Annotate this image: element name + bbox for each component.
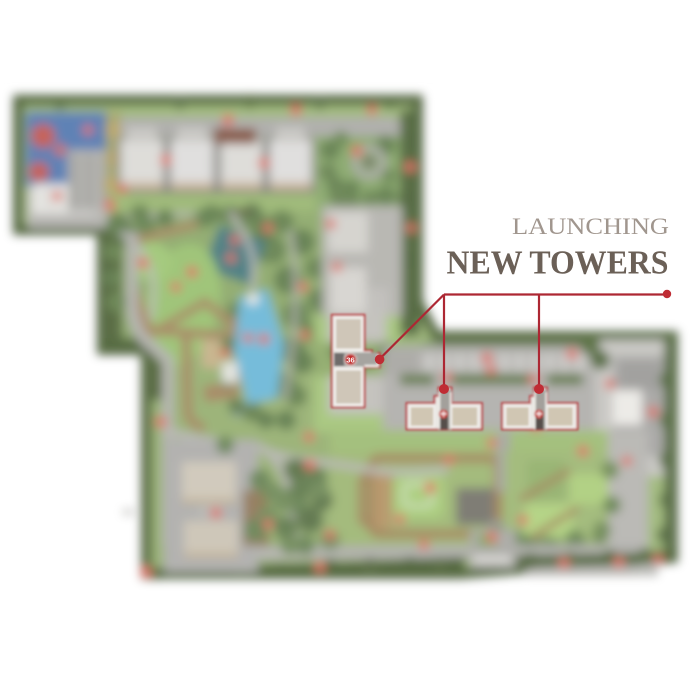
svg-text:LAUNCHING: LAUNCHING bbox=[512, 214, 669, 240]
svg-text:NEW TOWERS: NEW TOWERS bbox=[447, 245, 669, 282]
svg-text:36: 36 bbox=[346, 355, 354, 364]
